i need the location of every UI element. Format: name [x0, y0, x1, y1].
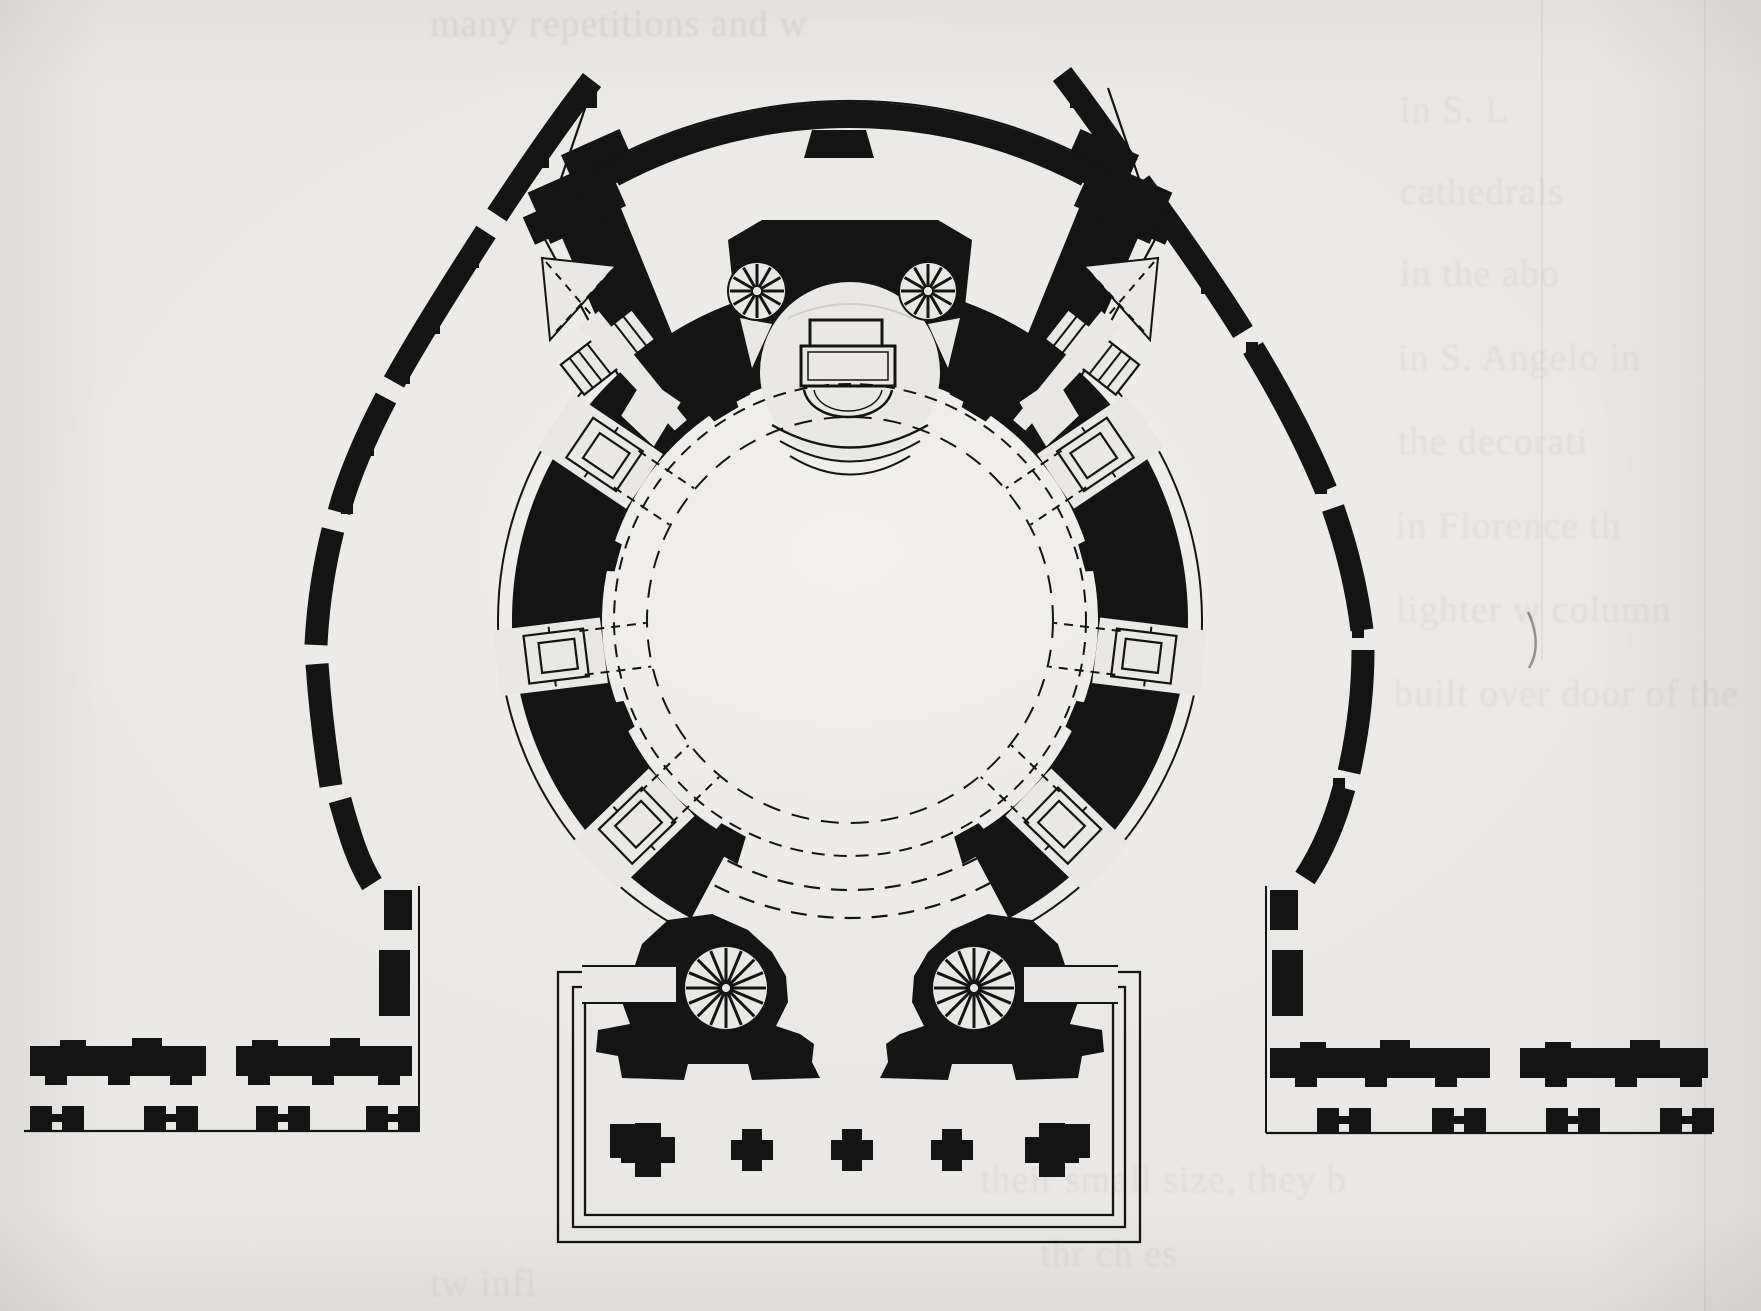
boundary-wall-right [1270, 1040, 1708, 1087]
radial-chapels [493, 394, 1208, 891]
page-hair-mark [1528, 612, 1536, 668]
precinct-portal-bump [804, 130, 874, 158]
boundary-wall-left [30, 1038, 412, 1085]
forecourt-pier-row [610, 1123, 1090, 1177]
scanned-book-page: many repetitions and w in S. L cathedral… [0, 0, 1761, 1311]
precinct-return-wall-left [379, 886, 419, 1131]
precinct-return-wall-right [1266, 886, 1303, 1133]
boundary-baselines [24, 1131, 1712, 1133]
dumbbell-pier-row [30, 1106, 1714, 1132]
floor-plan-figure [0, 0, 1761, 1311]
